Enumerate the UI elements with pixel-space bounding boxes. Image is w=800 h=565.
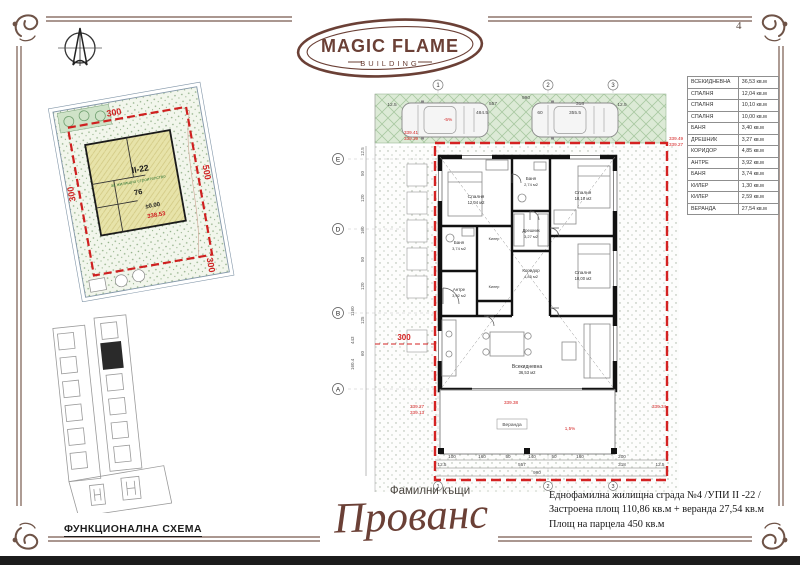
table-row: КОРИДОР4,85 кв.м: [688, 146, 778, 158]
room-name: КИЛЕР: [688, 192, 739, 203]
dim-label: 200: [618, 454, 626, 459]
table-row: БАНЯ3,74 кв.м: [688, 169, 778, 181]
table-row: СПАЛНЯ10,10 кв.м: [688, 100, 778, 112]
room-label: Килер: [489, 237, 500, 241]
room-name: СПАЛНЯ: [688, 100, 739, 111]
dim-label: 12.5: [387, 102, 397, 108]
room-area: 10,00 кв.м: [739, 112, 778, 123]
room-area: 12,04 м2: [468, 200, 486, 205]
dim-label: 990: [533, 470, 541, 475]
dim-label: 50: [551, 454, 557, 459]
level-label: 339.34: [652, 404, 666, 409]
axis-bubbles-left: E D B A: [333, 154, 344, 395]
corner-ornament-icon: [763, 15, 788, 40]
axis-a: A: [336, 387, 341, 394]
axis-d: D: [336, 227, 341, 234]
dim-label: 125: [360, 316, 365, 324]
room-name: СПАЛНЯ: [688, 89, 739, 100]
room-name: СПАЛНЯ: [688, 112, 739, 123]
room-label: Коридор: [522, 268, 540, 273]
dim-label: 50: [505, 454, 511, 459]
table-row: ДРЕШНИК3,27 кв.м: [688, 135, 778, 147]
schema-caption: ФУНКЦИОНАЛНА СХЕМА: [64, 523, 202, 537]
dim-label: 120: [360, 194, 365, 202]
building-description: Еднофамилна жилищна сграда №4 /УПИ II -2…: [549, 489, 777, 532]
room-area: 12,04 кв.м: [739, 89, 778, 100]
level-label: 339.49: [669, 136, 683, 141]
corner-ornament-icon: [13, 15, 38, 40]
room-label: Антре: [453, 287, 466, 292]
room-area: 3,27 кв.м: [739, 135, 778, 146]
brochure-sheet: 4 MAGIC FLAME BUILDING: [0, 0, 800, 565]
dim-label: 160: [478, 454, 486, 459]
dim-label: 443: [350, 336, 355, 344]
room-area: 2,74 м2: [524, 182, 539, 187]
slope-parking-label: -5%: [444, 117, 453, 123]
axis-e: E: [336, 157, 341, 164]
level-label: 339.39: [404, 136, 418, 141]
table-row: ВСЕКИДНЕВНА36,53 кв.м: [688, 77, 778, 89]
dim-label: 12.5: [438, 462, 447, 467]
site-plan-drawing: 300 300 500 300 II-22 за жилищно строите…: [28, 80, 254, 302]
veranda: Веранда 1,5%: [438, 390, 617, 454]
room-area: 2,59 кв.м: [739, 192, 778, 203]
key-map-drawing: [48, 313, 172, 513]
page-number: 4: [736, 20, 742, 32]
left-dimension-column: 12.5 50 120 160 50 120 125 60 1160 443 1…: [350, 146, 366, 476]
room-label: Баня: [454, 240, 465, 245]
room-area: 4,85 м2: [524, 274, 539, 279]
room-area: 4,85 кв.м: [739, 146, 778, 157]
dim-label: 160.4: [350, 358, 355, 370]
room-area: 10,10 м2: [575, 196, 593, 201]
north-arrow-icon: [48, 16, 112, 80]
level-label: 339.27: [410, 404, 424, 409]
room-name: БАНЯ: [688, 123, 739, 134]
dim-label: 100: [448, 454, 456, 459]
logo-subtitle: BUILDING: [360, 59, 419, 68]
table-row: ВЕРАНДА27,54 кв.м: [688, 204, 778, 215]
level-label: 339.13: [410, 410, 424, 415]
room-name: КИЛЕР: [688, 181, 739, 192]
dim-label: 557: [489, 101, 497, 107]
site-plot-number: 76: [133, 187, 143, 197]
level-label: 339.38: [504, 400, 518, 405]
dim-label: 318: [576, 101, 584, 107]
description-line: Площ на парцела 450 кв.м: [549, 518, 777, 532]
dim-label: 12.5: [360, 147, 365, 156]
room-area: 1,30 кв.м: [739, 181, 778, 192]
dim-label: 50: [360, 256, 365, 262]
room-name: АНТРЕ: [688, 158, 739, 169]
room-name: ВСЕКИДНЕВНА: [688, 77, 739, 88]
room-area: 10,10 кв.м: [739, 100, 778, 111]
dim-label: 355.5: [569, 110, 581, 116]
dim-label: 12.5: [617, 102, 627, 108]
room-area: 3,40 кв.м: [739, 123, 778, 134]
room-label: Килер: [489, 285, 500, 289]
scan-edge-strip: [0, 556, 800, 565]
room-name: КОРИДОР: [688, 146, 739, 157]
table-row: СПАЛНЯ10,00 кв.м: [688, 112, 778, 124]
dim-label: 557: [518, 462, 526, 467]
model-name-script: Прованс: [325, 489, 497, 544]
room-area: 3,74 м2: [452, 246, 467, 251]
room-area: 3,92 кв.м: [739, 158, 778, 169]
house-plan: Спалня 12,04 м2 Баня 2,74 м2 Спалня 10,1…: [437, 154, 618, 393]
room-area: 3,92 м2: [452, 293, 467, 298]
dim-label: 140: [528, 454, 536, 459]
dim-label: 160: [576, 454, 584, 459]
red-dim-300: 300: [397, 333, 411, 342]
dim-label: 60: [360, 350, 365, 356]
dim-label: 484.5: [476, 110, 488, 116]
dim-label: 318: [618, 462, 626, 467]
table-row: КИЛЕР1,30 кв.м: [688, 181, 778, 193]
room-area: 36,53 кв.м: [739, 77, 778, 88]
room-label: Дрешник: [522, 228, 540, 233]
room-name: ВЕРАНДА: [688, 204, 739, 215]
room-name: ДРЕШНИК: [688, 135, 739, 146]
dim-label: 160: [360, 226, 365, 234]
logo-title: MAGIC FLAME: [321, 36, 459, 56]
company-logo: MAGIC FLAME BUILDING: [292, 14, 488, 82]
room-schedule-table: ВСЕКИДНЕВНА36,53 кв.м СПАЛНЯ12,04 кв.м С…: [687, 76, 779, 215]
dim-label: 1160: [350, 306, 355, 316]
dim-label: 12.5: [656, 462, 665, 467]
dim-label: 990: [522, 95, 530, 101]
level-label: 339.41: [404, 130, 418, 135]
room-name: БАНЯ: [688, 169, 739, 180]
room-area: 10,00 м2: [575, 276, 593, 281]
table-row: СПАЛНЯ12,04 кв.м: [688, 89, 778, 101]
dim-label: 60: [537, 110, 543, 116]
dim-label: 120: [360, 282, 365, 290]
description-line: Еднофамилна жилищна сграда №4 /УПИ II -2…: [549, 489, 777, 503]
corner-ornament-icon: [13, 523, 38, 548]
room-area: 36,53 м2: [519, 370, 537, 375]
floor-plan-drawing: 1 2 3 E D B A 12.5 50 120 160 50 120 125…: [322, 76, 686, 504]
level-label: 339.27: [669, 142, 683, 147]
dim-label: 50: [360, 170, 365, 176]
room-area: 3,27 м2: [524, 234, 539, 239]
grid-bubbles-top: 1 2 3: [433, 80, 618, 90]
table-row: БАНЯ3,40 кв.м: [688, 123, 778, 135]
axis-b: B: [336, 311, 340, 318]
slope-veranda-label: 1,5%: [565, 426, 575, 431]
room-area: 27,54 кв.м: [739, 204, 778, 215]
table-row: КИЛЕР2,59 кв.м: [688, 192, 778, 204]
room-area: 3,74 кв.м: [739, 169, 778, 180]
description-line: Застроена площ 110,86 кв.м + веранда 27,…: [549, 503, 777, 517]
room-label: Баня: [526, 176, 537, 181]
table-row: АНТРЕ3,92 кв.м: [688, 158, 778, 170]
veranda-label: Веранда: [502, 422, 522, 428]
